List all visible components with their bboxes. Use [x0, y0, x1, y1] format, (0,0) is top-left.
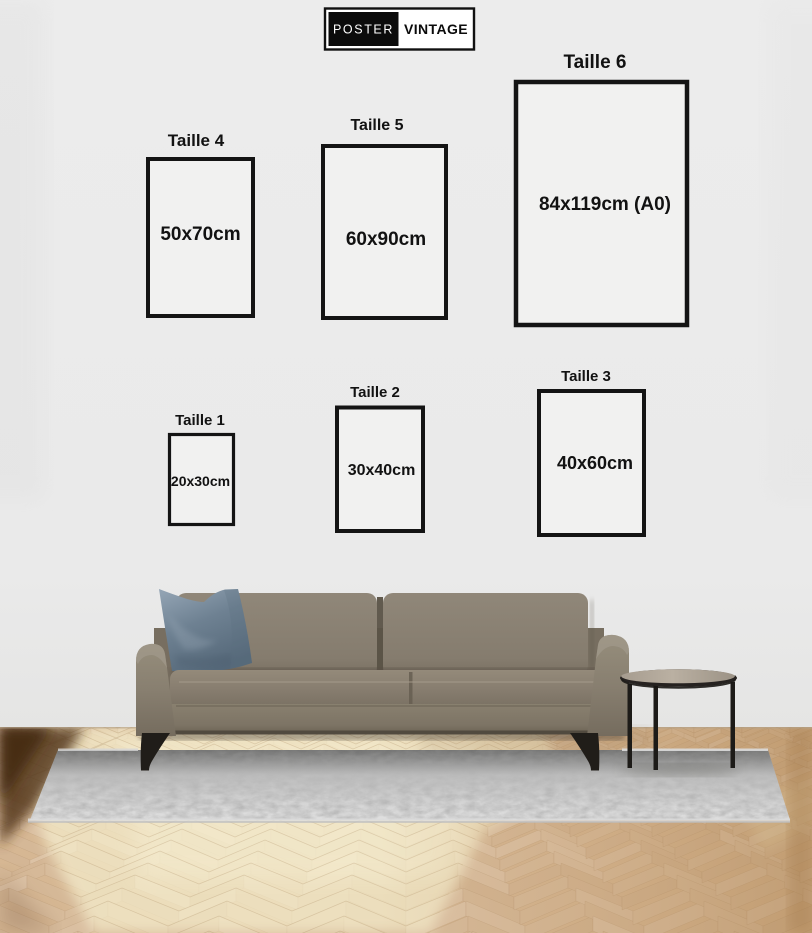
svg-text:Taille 6: Taille 6	[563, 52, 626, 73]
svg-text:Taille 5: Taille 5	[350, 117, 403, 134]
svg-text:POSTER: POSTER	[333, 23, 394, 37]
svg-text:Taille 3: Taille 3	[561, 368, 611, 385]
svg-text:20x30cm: 20x30cm	[171, 473, 230, 489]
svg-text:Taille 4: Taille 4	[168, 131, 225, 150]
svg-text:40x60cm: 40x60cm	[557, 453, 633, 473]
svg-text:60x90cm: 60x90cm	[346, 229, 426, 250]
svg-text:50x70cm: 50x70cm	[160, 224, 240, 245]
svg-text:30x40cm: 30x40cm	[348, 462, 416, 479]
svg-text:Taille 2: Taille 2	[350, 384, 400, 401]
svg-text:VINTAGE: VINTAGE	[404, 21, 468, 37]
svg-text:84x119cm (A0): 84x119cm (A0)	[539, 194, 671, 215]
svg-text:Taille 1: Taille 1	[175, 412, 225, 429]
